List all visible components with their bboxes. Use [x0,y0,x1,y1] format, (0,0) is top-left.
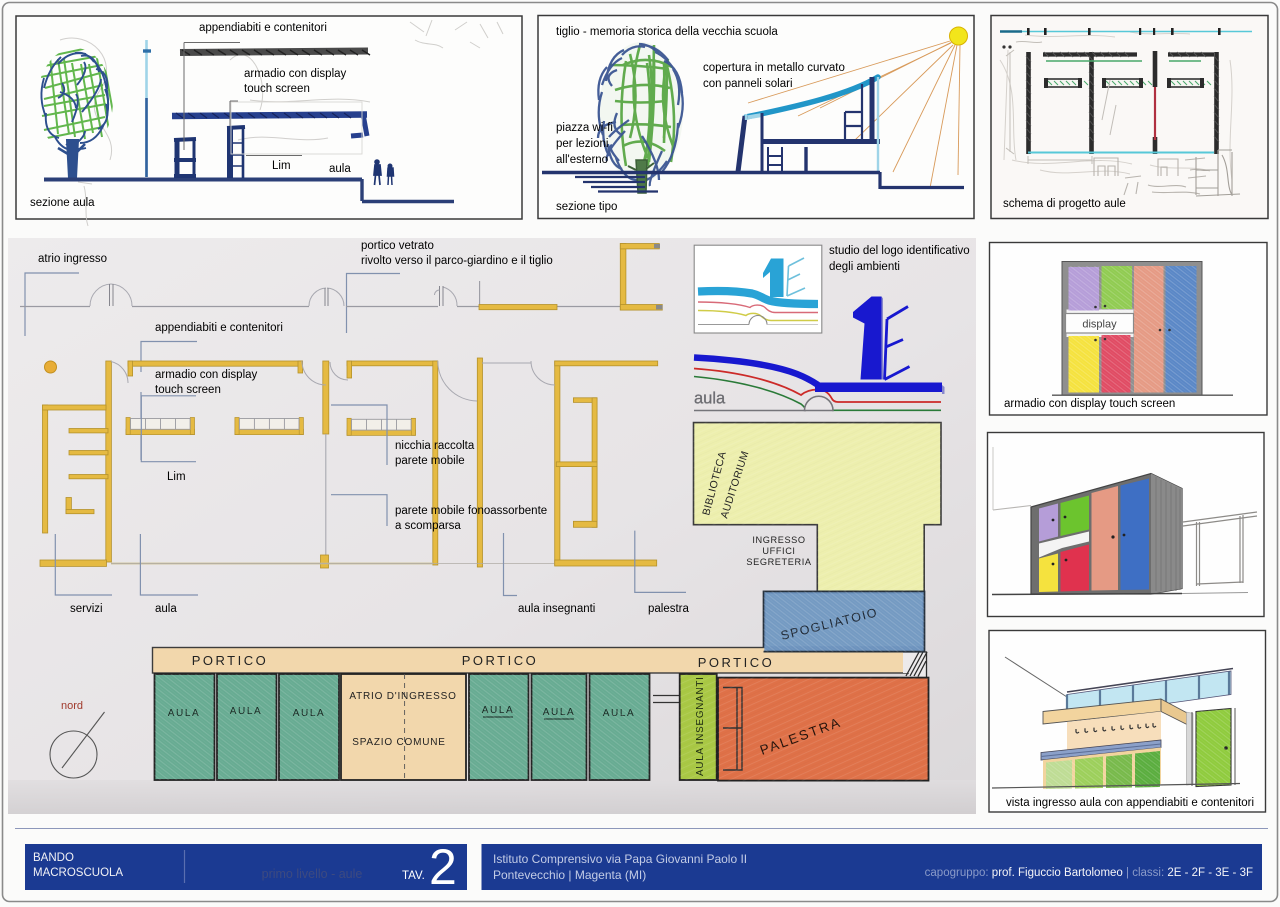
svg-text:touch screen: touch screen [244,83,310,95]
svg-text:all'esterno: all'esterno [556,154,608,166]
svg-text:servizi: servizi [70,603,103,615]
svg-text:appendiabiti e contenitori: appendiabiti e contenitori [199,22,327,34]
svg-text:nicchia raccolta: nicchia raccolta [395,440,475,452]
svg-text:con panneli solari: con panneli solari [703,78,793,90]
svg-text:schema di progetto aule: schema di progetto aule [1003,198,1126,210]
svg-text:PORTICO: PORTICO [462,653,539,668]
svg-text:Lim: Lim [272,160,291,172]
svg-text:rivolto verso il parco-giardin: rivolto verso il parco-giardino e il tig… [361,255,553,267]
svg-text:atrio ingresso: atrio ingresso [38,253,107,265]
svg-text:UFFICI: UFFICI [762,546,795,556]
svg-text:PORTICO: PORTICO [698,655,775,670]
svg-text:aula: aula [329,163,351,175]
svg-text:aula insegnanti: aula insegnanti [518,603,595,615]
svg-text:parete mobile fonoassorbente: parete mobile fonoassorbente [395,505,547,517]
svg-text:2: 2 [429,839,457,895]
svg-text:INGRESSO: INGRESSO [752,535,805,545]
svg-text:nord: nord [61,700,83,712]
svg-text:tiglio - memoria storica della: tiglio - memoria storica della vecchia s… [556,26,778,38]
svg-text:MACROSCUOLA: MACROSCUOLA [33,867,123,879]
svg-text:armadio con display touch scre: armadio con display touch screen [1004,398,1175,410]
svg-text:capogruppo: prof. Figuccio Bar: capogruppo: prof. Figuccio Bartolomeo | … [925,867,1253,879]
svg-text:BANDO: BANDO [33,852,74,864]
svg-text:SEGRETERIA: SEGRETERIA [746,557,811,567]
svg-text:Istituto Comprensivo via Papa: Istituto Comprensivo via Papa Giovanni P… [493,852,747,866]
svg-text:studio del logo identificativo: studio del logo identificativo [829,245,970,257]
svg-text:aula: aula [694,390,726,408]
svg-text:Pontevecchio | Magenta (MI): Pontevecchio | Magenta (MI) [493,868,646,882]
svg-text:TAV.: TAV. [402,870,425,882]
svg-text:appendiabiti e contenitori: appendiabiti e contenitori [155,322,283,334]
svg-text:copertura in metallo curvato: copertura in metallo curvato [703,62,845,74]
svg-text:display: display [1082,319,1117,331]
svg-text:portico vetrato: portico vetrato [361,240,434,252]
svg-text:sezione aula: sezione aula [30,197,95,209]
svg-text:palestra: palestra [648,603,690,615]
svg-text:aula: aula [155,603,177,615]
svg-text:sezione tipo: sezione tipo [556,201,617,213]
svg-text:per lezioni: per lezioni [556,138,608,150]
svg-text:piazza wi-fi: piazza wi-fi [556,122,613,134]
svg-text:armadio con display: armadio con display [244,68,347,80]
svg-text:ATRIO D'INGRESSO: ATRIO D'INGRESSO [349,691,456,702]
svg-text:a scomparsa: a scomparsa [395,520,461,532]
svg-text:SPAZIO COMUNE: SPAZIO COMUNE [352,737,446,748]
svg-text:primo livello - aule: primo livello - aule [262,867,363,881]
svg-text:armadio con display: armadio con display [155,369,258,381]
svg-text:PORTICO: PORTICO [192,653,269,668]
svg-text:touch screen: touch screen [155,384,221,396]
svg-text:Lim: Lim [167,471,186,483]
svg-text:parete mobile: parete mobile [395,455,465,467]
svg-text:degli ambienti: degli ambienti [829,261,900,273]
svg-text:vista ingresso aula con append: vista ingresso aula con appendiabiti e c… [1006,797,1254,809]
